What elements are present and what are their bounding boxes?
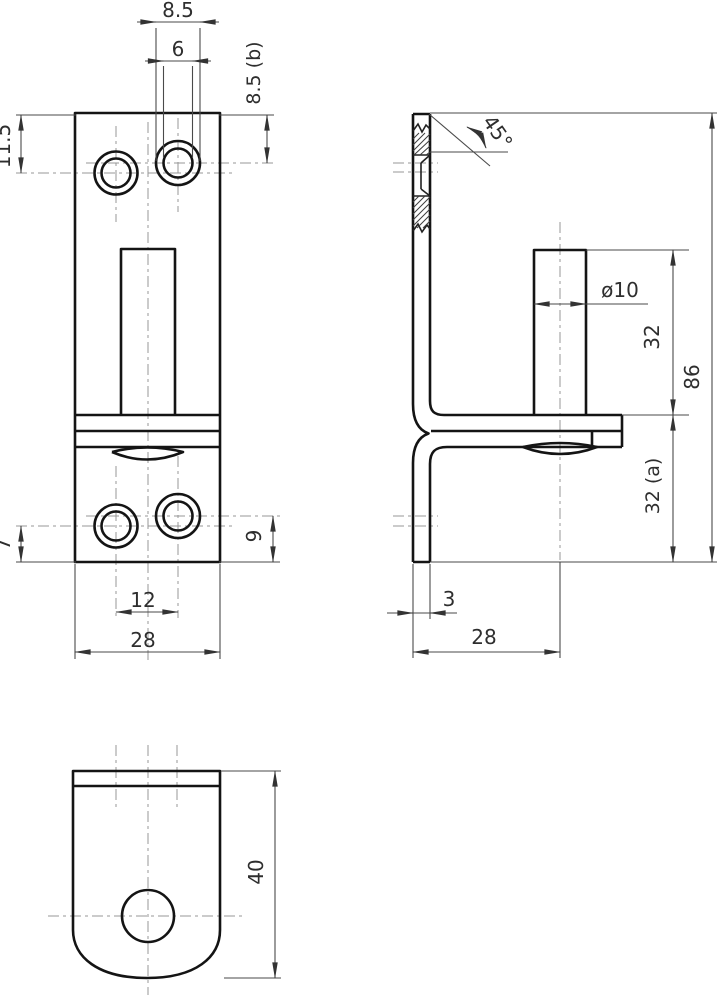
dim-text-bottom-left: 7 bbox=[0, 538, 15, 551]
break-zigzag bbox=[413, 124, 430, 132]
hatch-line bbox=[413, 133, 425, 145]
dim-text-pin-dia: ø10 bbox=[601, 278, 639, 302]
dim-text-bottom-right: 9 bbox=[242, 530, 266, 543]
dim-text-thickness: 3 bbox=[443, 587, 456, 611]
dim-text-counterbore: 8.5 bbox=[162, 0, 194, 22]
bottom-dimensions: 40 bbox=[221, 771, 281, 978]
bottom-view: 40 bbox=[48, 745, 281, 995]
bottom-body bbox=[73, 771, 220, 978]
dim-text-hole: 6 bbox=[172, 37, 185, 61]
dim-text-total-height: 86 bbox=[680, 364, 704, 389]
hatching-lower bbox=[413, 196, 430, 228]
chamfer-annotation: 45° bbox=[429, 111, 518, 166]
dim-text-tab-length: 40 bbox=[244, 859, 268, 884]
bottom-centerlines bbox=[48, 745, 245, 995]
dim-text-depth: 28 bbox=[471, 625, 496, 649]
side-body bbox=[413, 114, 622, 562]
breakout-section bbox=[413, 124, 430, 232]
technical-drawing: 8.5 6 8.5 (b) 11.5 7 9 12 28 bbox=[0, 0, 720, 1000]
front-view: 8.5 6 8.5 (b) 11.5 7 9 12 28 bbox=[0, 0, 280, 660]
side-extension-lines bbox=[413, 113, 717, 658]
wall-inner-flange-top bbox=[430, 114, 622, 415]
dim-text-right-offset: 8.5 (b) bbox=[243, 41, 265, 104]
dim-text-left-offset: 11.5 bbox=[0, 124, 15, 169]
tab-outline bbox=[73, 771, 220, 978]
side-view: 45° ø10 32 86 32 (a) 3 bbox=[387, 111, 717, 658]
dim-text-width: 28 bbox=[130, 628, 155, 652]
side-dimensions: ø10 32 86 32 (a) 3 28 bbox=[387, 113, 712, 652]
break-zigzag bbox=[413, 224, 430, 232]
hatch-line bbox=[413, 196, 425, 208]
countersink-chamfer bbox=[421, 155, 430, 163]
countersink-chamfer bbox=[421, 189, 430, 196]
flange-bottom bbox=[430, 447, 622, 562]
dim-text-pin-height: 32 bbox=[640, 324, 664, 349]
drawing-canvas: 8.5 6 8.5 (b) 11.5 7 9 12 28 bbox=[0, 0, 720, 1000]
hatching-upper bbox=[413, 133, 430, 155]
dim-text-lower-height: 32 (a) bbox=[642, 458, 664, 515]
front-centerlines bbox=[16, 118, 280, 660]
front-dimensions: 8.5 6 8.5 (b) 11.5 7 9 12 28 bbox=[0, 0, 273, 652]
dim-text-pitch: 12 bbox=[130, 588, 155, 612]
dim-text-chamfer: 45° bbox=[478, 111, 518, 154]
